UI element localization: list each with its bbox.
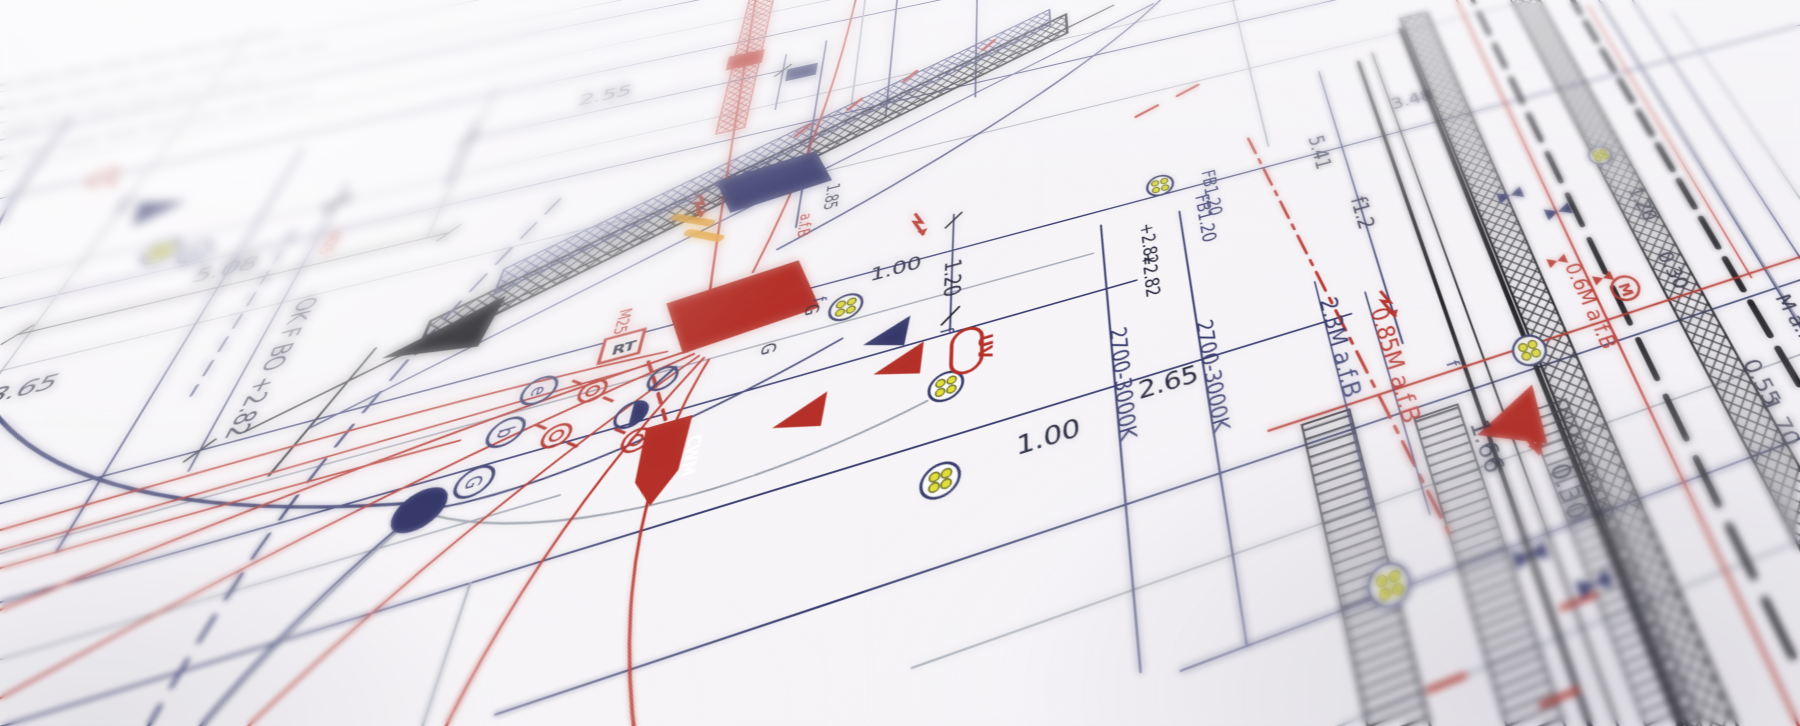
photo-of-electrical-blueprint: e b G d M <box>0 0 1800 726</box>
dim-label: 1.20 <box>938 257 966 300</box>
blueprint-paper: e b G d M <box>0 0 1800 726</box>
blueprint-drawing: e b G d M <box>0 0 1800 726</box>
